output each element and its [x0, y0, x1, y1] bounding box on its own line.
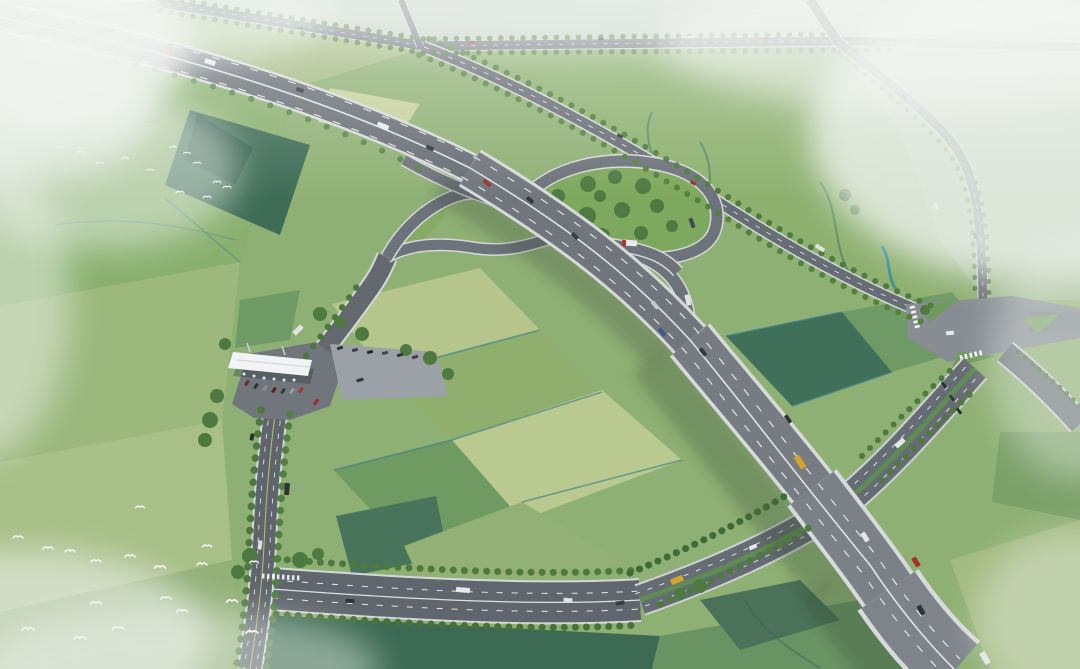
vehicle [622, 240, 626, 246]
vehicle [345, 599, 354, 604]
toll-booth-island [243, 373, 246, 376]
tree-cluster [920, 305, 930, 315]
toll-booth-island [253, 375, 256, 378]
loop-bush [634, 226, 648, 240]
loop-bush [614, 202, 630, 218]
aerial-interchange-render [0, 0, 1080, 669]
vehicle [563, 598, 572, 603]
loop-bush [666, 220, 678, 232]
tree-cluster [442, 368, 454, 380]
tree-cluster [313, 307, 327, 321]
toll-booth-island [293, 379, 296, 382]
tree-cluster [312, 548, 324, 560]
toll-booth-island [283, 379, 286, 382]
tree-cluster [292, 552, 308, 568]
loop-bush [650, 199, 664, 213]
tree-cluster [210, 389, 224, 403]
tree-cluster [355, 327, 369, 341]
toll-booth-island [273, 378, 276, 381]
vehicle [946, 331, 954, 336]
tree-cluster [334, 316, 346, 328]
tree-cluster [202, 412, 218, 428]
vehicle [284, 483, 290, 495]
tree-cluster [231, 565, 245, 579]
tree-cluster [198, 433, 212, 447]
tree-cluster [423, 351, 437, 365]
tree-cluster [693, 579, 707, 593]
toll-booth-island [263, 377, 266, 380]
tree-cluster [219, 338, 231, 350]
tree-cluster [674, 588, 686, 600]
atmosphere-haze [0, 0, 1080, 200]
scene-canvas [0, 0, 1080, 669]
